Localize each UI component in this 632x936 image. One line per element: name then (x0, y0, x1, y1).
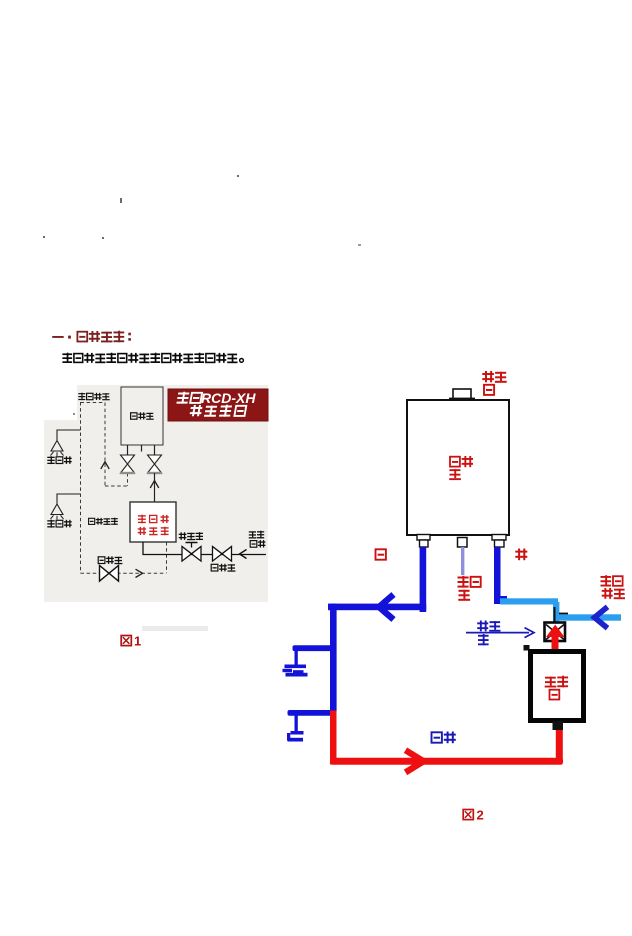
svg-text:1: 1 (134, 634, 141, 649)
svg-text:2: 2 (477, 808, 484, 823)
svg-text:RCD-XH: RCD-XH (201, 390, 256, 406)
